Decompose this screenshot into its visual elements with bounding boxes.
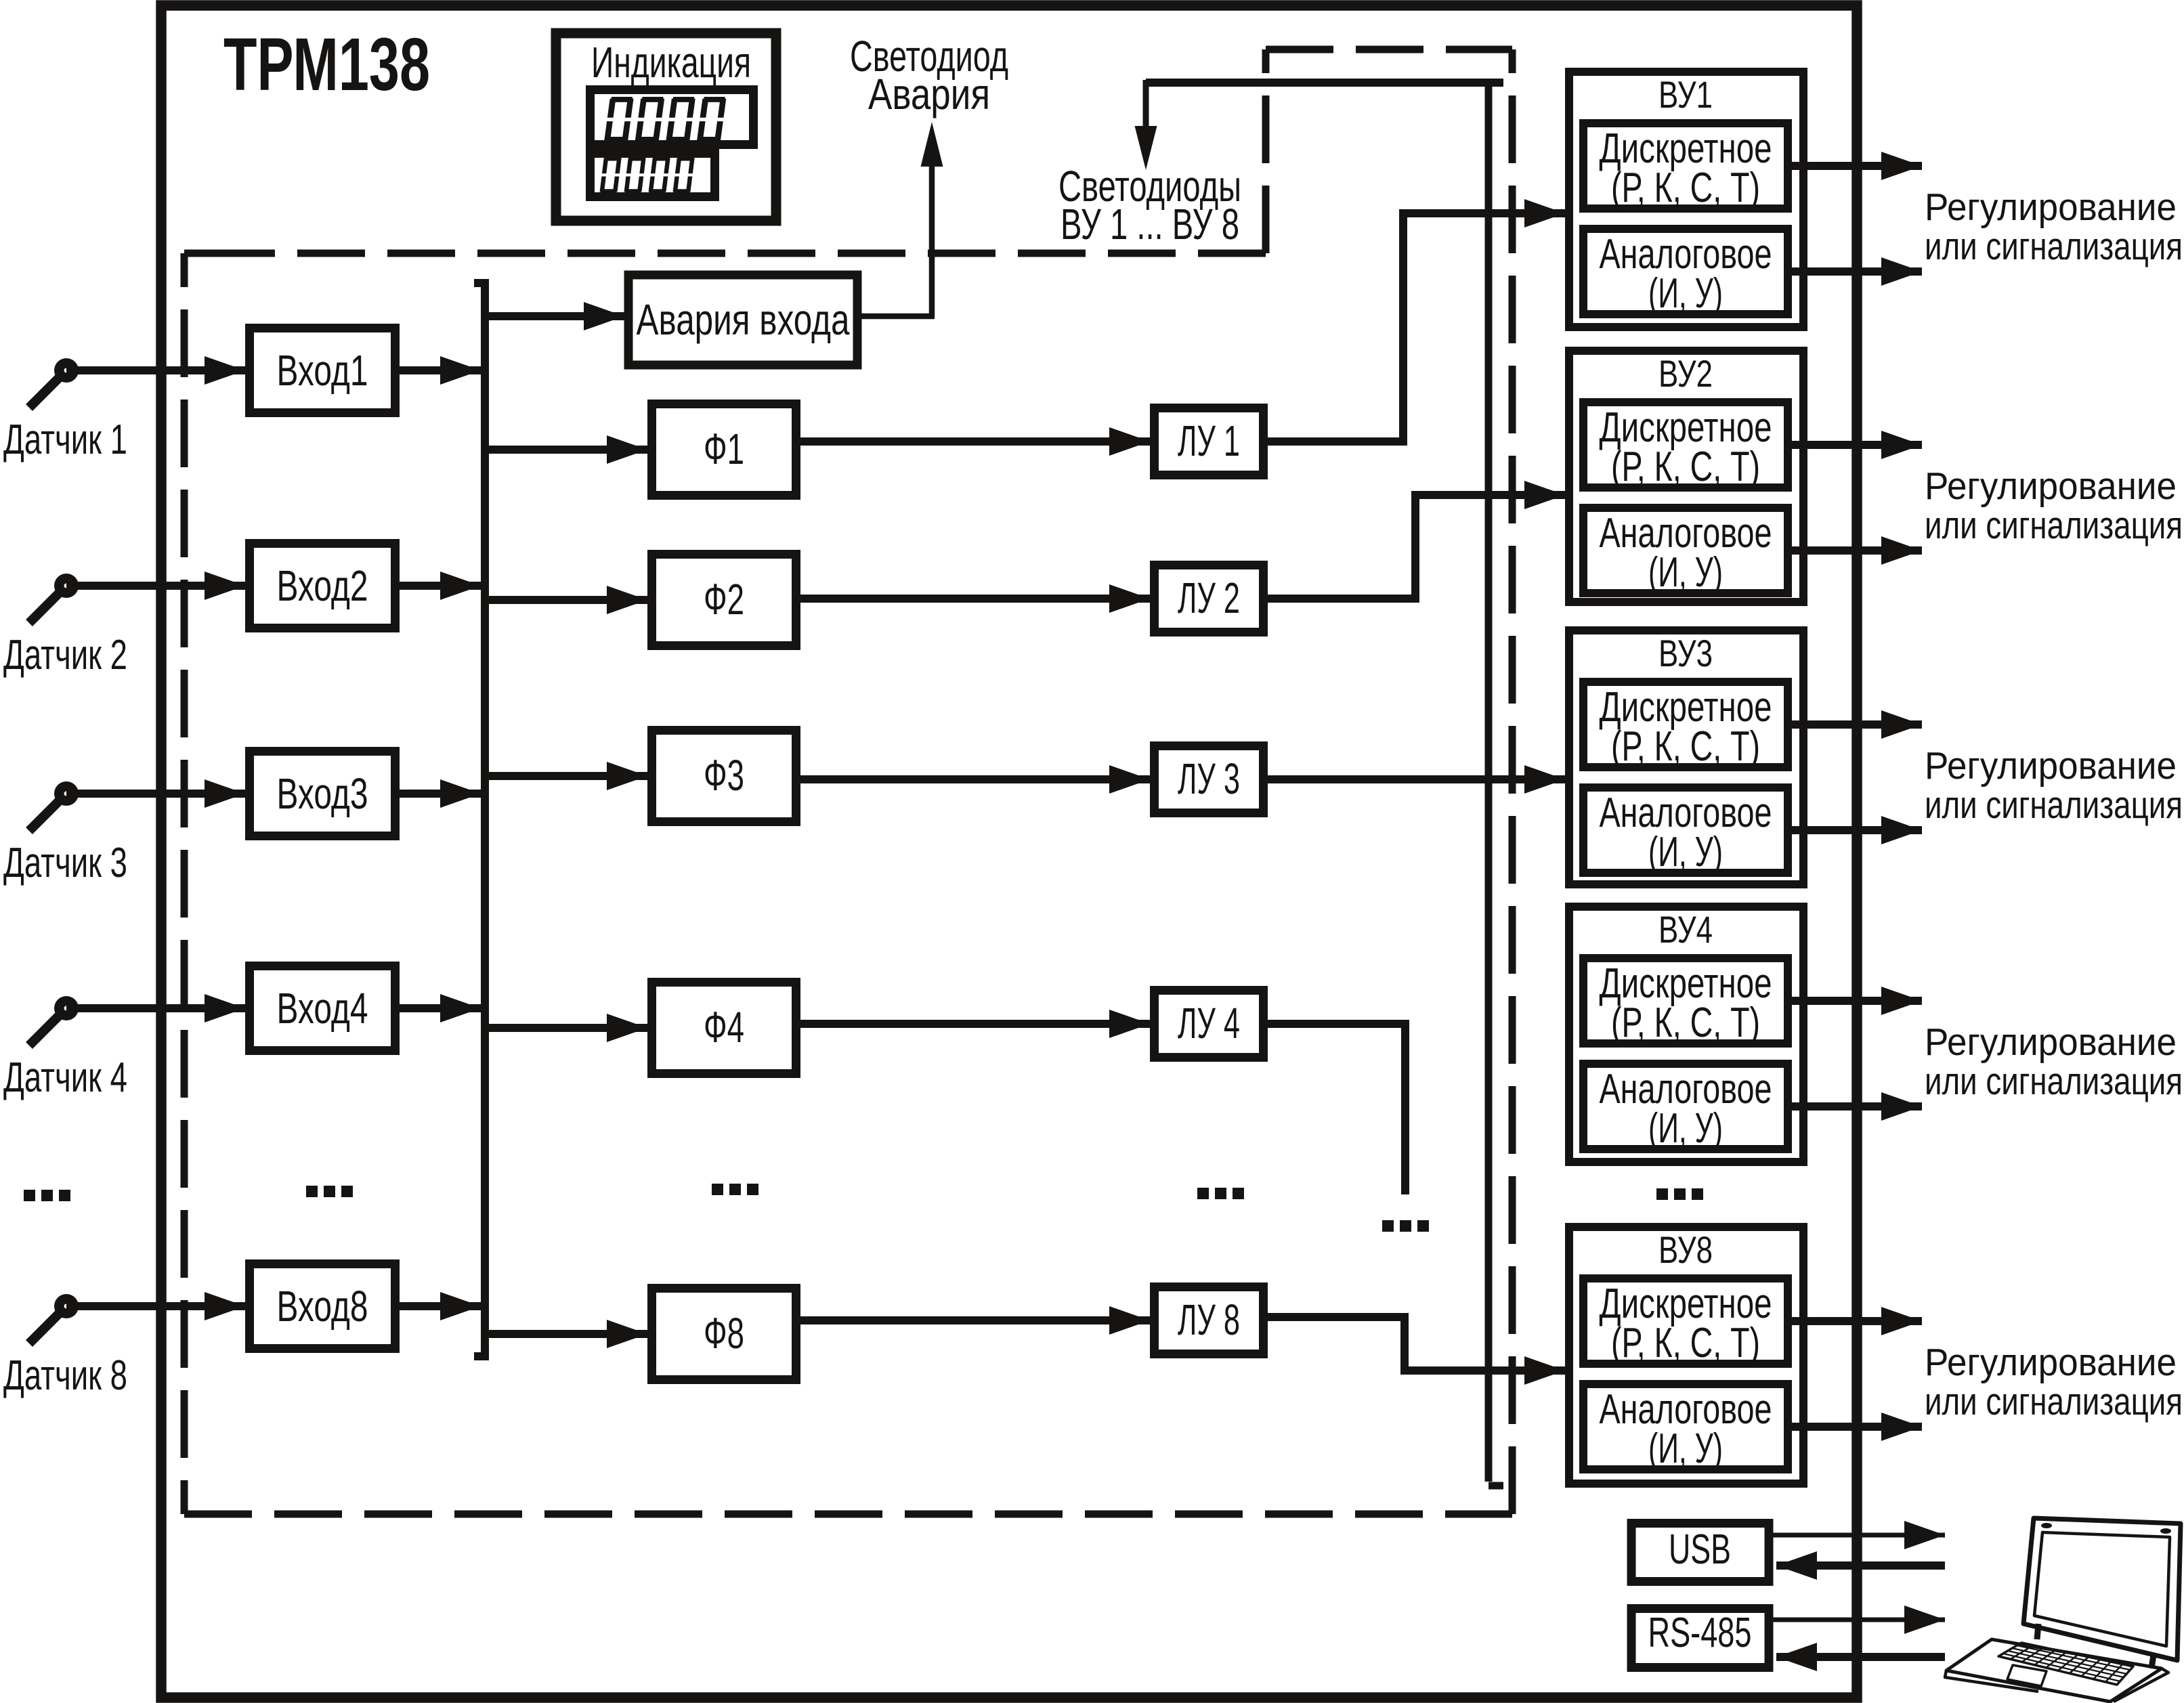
svg-text:ЛУ 4: ЛУ 4 [1178,999,1240,1048]
svg-text:Авария: Авария [868,70,990,118]
svg-text:или сигнализация: или сигнализация [1925,1060,2183,1103]
svg-text:(И, У): (И, У) [1648,1105,1723,1152]
svg-text:или сигнализация: или сигнализация [1925,225,2183,268]
svg-text:(И, У): (И, У) [1648,270,1723,317]
svg-text:Ф2: Ф2 [704,575,744,624]
svg-text:Индикация: Индикация [591,38,751,87]
svg-text:ЛУ 3: ЛУ 3 [1178,754,1240,803]
svg-text:Датчик 4: Датчик 4 [3,1054,127,1101]
svg-text:Ф8: Ф8 [704,1309,744,1358]
svg-text:(Р, К, С, Т): (Р, К, С, Т) [1611,723,1760,770]
svg-text:Регулирование: Регулирование [1925,186,2177,229]
svg-text:(Р, К, С, Т): (Р, К, С, Т) [1611,165,1760,211]
svg-text:Датчик 1: Датчик 1 [3,416,127,463]
svg-text:(Р, К, С, Т): (Р, К, С, Т) [1611,1320,1760,1366]
svg-text:Вход3: Вход3 [277,769,368,818]
svg-text:Ф4: Ф4 [704,1003,744,1052]
svg-text:Вход2: Вход2 [277,561,368,610]
svg-text:или сигнализация: или сигнализация [1925,1380,2183,1423]
svg-text:ВУ4: ВУ4 [1658,908,1713,951]
svg-text:Авария входа: Авария входа [637,295,850,344]
svg-text:(Р, К, С, Т): (Р, К, С, Т) [1611,999,1760,1046]
svg-text:ЛУ 2: ЛУ 2 [1178,574,1240,622]
svg-text:ВУ2: ВУ2 [1658,352,1713,395]
svg-text:ВУ3: ВУ3 [1658,632,1713,674]
svg-text:Вход8: Вход8 [277,1282,368,1331]
svg-text:Датчик 3: Датчик 3 [3,840,127,886]
svg-text:Регулирование: Регулирование [1925,465,2177,508]
svg-text:или сигнализация: или сигнализация [1925,783,2183,827]
svg-text:ТРМ138: ТРМ138 [223,23,430,106]
svg-text:Ф1: Ф1 [704,425,744,473]
svg-text:ЛУ 8: ЛУ 8 [1178,1295,1240,1344]
svg-text:Датчик 2: Датчик 2 [3,632,127,678]
svg-text:Регулирование: Регулирование [1925,744,2177,788]
svg-text:Ф3: Ф3 [704,751,744,800]
svg-text:Датчик 8: Датчик 8 [3,1352,127,1399]
svg-text:USB: USB [1669,1526,1731,1573]
svg-text:Регулирование: Регулирование [1925,1341,2177,1384]
svg-text:(И, У): (И, У) [1648,829,1723,876]
svg-text:RS-485: RS-485 [1648,1610,1752,1656]
svg-text:ВУ1: ВУ1 [1658,73,1713,116]
svg-text:или сигнализация: или сигнализация [1925,504,2183,547]
svg-text:Вход4: Вход4 [277,984,368,1033]
svg-text:ВУ8: ВУ8 [1658,1228,1713,1271]
svg-text:Вход1: Вход1 [277,346,368,395]
svg-text:ВУ 1 ... ВУ 8: ВУ 1 ... ВУ 8 [1061,200,1239,249]
svg-text:ЛУ 1: ЛУ 1 [1178,416,1240,465]
svg-text:Регулирование: Регулирование [1925,1020,2177,1064]
svg-text:(И, У): (И, У) [1648,1425,1723,1472]
svg-text:(Р, К, С, Т): (Р, К, С, Т) [1611,444,1760,490]
svg-text:(И, У): (И, У) [1648,549,1723,596]
